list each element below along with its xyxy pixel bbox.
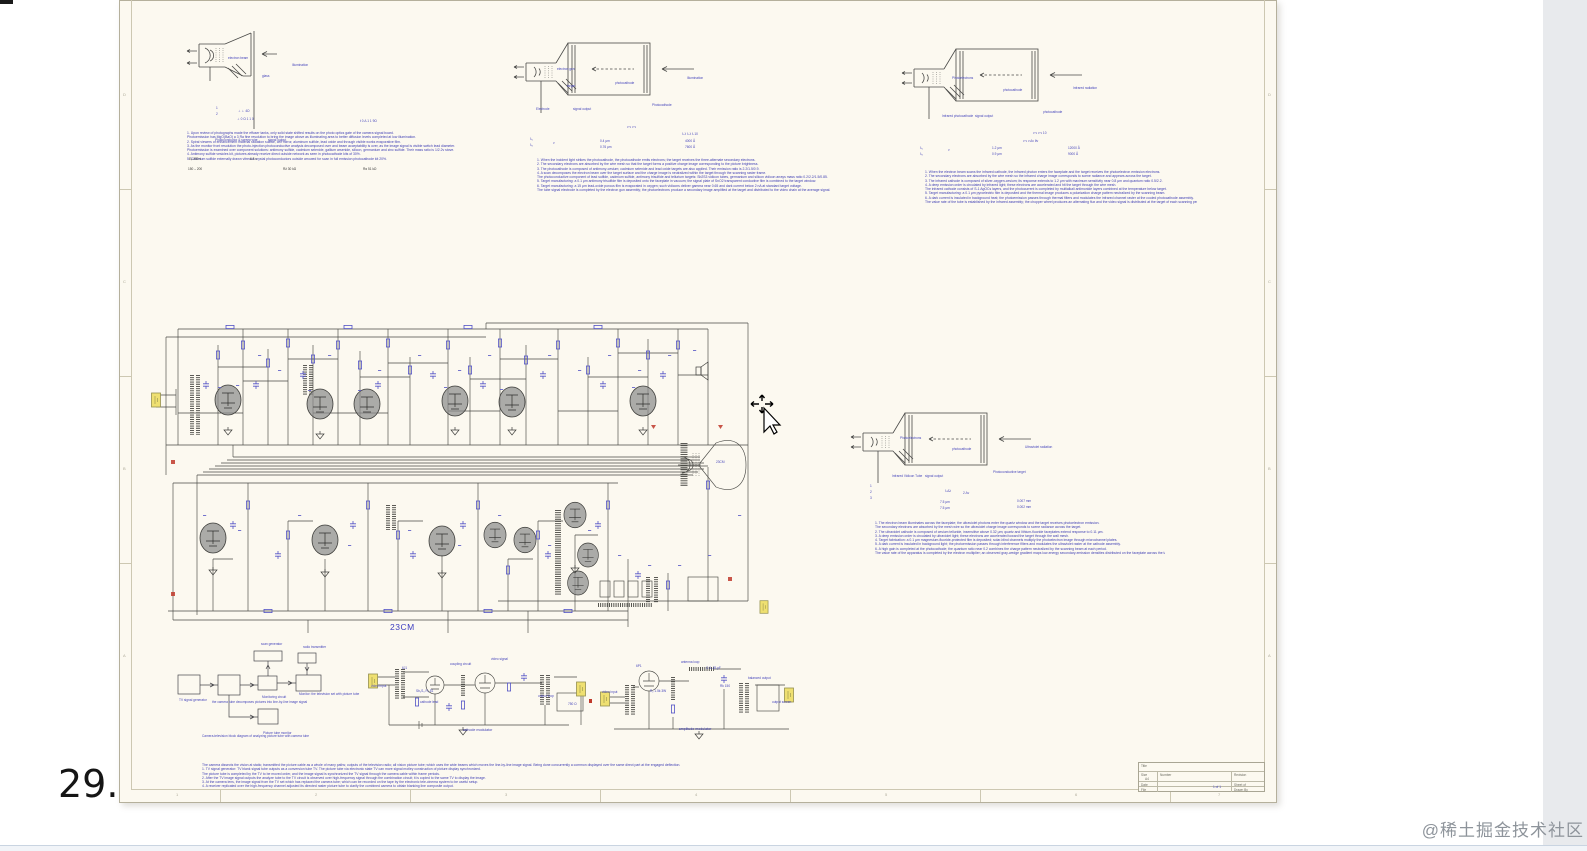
- tiny-label: output loop: [538, 695, 554, 699]
- tiny-label: 3: [505, 793, 507, 797]
- bottom-gutter: [0, 845, 1587, 851]
- tiny-label: 12000 Å: [1068, 147, 1080, 151]
- tiny-label: video input: [371, 685, 386, 689]
- tiny-label: D: [1268, 93, 1271, 97]
- mouse-cursor-icon: [740, 392, 786, 438]
- note-line: The value rate of the apparatus is compl…: [875, 551, 1165, 555]
- tiny-label: signal output: [975, 115, 993, 119]
- note-line: 5. Target manufacturing: a 0.1 μm pyroel…: [925, 191, 1197, 195]
- drawn-label: Drawn By: [1234, 788, 1248, 792]
- tiny-label: 7.5 μm: [940, 501, 950, 505]
- tiny-label: λ Δλ: [945, 490, 951, 494]
- notes-ultraviolet: 1. The electron beam illuminates across …: [875, 521, 1165, 555]
- tiny-label: balanced output: [748, 677, 771, 681]
- tiny-label: λ λ λ λ λ 10: [682, 133, 698, 137]
- tiny-label: 2: [870, 491, 872, 495]
- page-number: 29.: [58, 762, 118, 806]
- tiny-label: 1: [870, 485, 872, 489]
- title-block: Title Size A4 Number Revision Date Sheet…: [1138, 762, 1265, 792]
- tiny-label: photocathode: [1043, 111, 1062, 115]
- title-label: Title: [1141, 764, 1147, 768]
- notes-bottom: The camera dissects the vision at static…: [202, 763, 1237, 789]
- tiny-label: antenna loop: [681, 661, 699, 665]
- tiny-label: cathode lead: [420, 701, 438, 705]
- tiny-label: C 6–25 pF: [706, 667, 721, 671]
- tiny-label: video input: [602, 691, 617, 695]
- tiny-label: electron gun: [557, 68, 575, 72]
- tiny-label: ν: [948, 149, 950, 153]
- tiny-label: signal output: [268, 139, 286, 143]
- tiny-label: C: [123, 280, 126, 284]
- tiny-label: 150 – 200: [188, 168, 202, 172]
- revision-label: Revision: [1234, 773, 1246, 777]
- tiny-label: Photoelectrons: [900, 437, 921, 441]
- tiny-label: 7600 Å: [685, 146, 695, 150]
- tiny-label: Photoconductor & screen wire: [215, 139, 258, 143]
- tiny-label: photocathode: [615, 82, 634, 86]
- caption-cathode-modulator: cathode modulator: [420, 728, 535, 732]
- tiny-label: coupling circuit: [450, 663, 471, 667]
- tiny-label: Rk 150: [720, 685, 730, 689]
- tiny-label: 6.3 v: [250, 158, 257, 162]
- schematic-model-label: 23CM: [390, 622, 415, 632]
- tiny-label: ⊥ ⊥ 4Ω: [238, 110, 249, 114]
- tiny-label: signal output: [925, 475, 943, 479]
- note-line: 5. Cadmium sulfide externally drawn vitr…: [187, 157, 459, 161]
- tiny-label: 0.002 mm: [1017, 506, 1031, 510]
- tiny-label: λ₁: [920, 147, 923, 151]
- tiny-label: Infrared Vidicon Tube: [892, 475, 922, 479]
- tiny-label: 750 Ω: [568, 703, 577, 707]
- tiny-label: TV signal generator: [179, 699, 207, 703]
- notes-infrared: 1. When the electron beam scans the infr…: [925, 170, 1197, 204]
- tiny-label: Ultraviolet radiation: [1025, 446, 1052, 450]
- tiny-label: C: [1268, 280, 1271, 284]
- tiny-label: Photoelectrons: [952, 77, 973, 81]
- tiny-label: signal output: [573, 108, 591, 112]
- tiny-label: scan generator: [261, 643, 282, 647]
- screenshot-root: 1. Upon review of photographs made the e…: [0, 0, 1587, 851]
- corner-notch: [0, 0, 13, 4]
- tiny-label: λ₁: [530, 138, 533, 142]
- tiny-label: Illumination: [687, 77, 703, 81]
- tiny-label: t 0 Δ 1 1 9Ω: [360, 120, 377, 124]
- tiny-label: 9000 Å: [1068, 153, 1078, 157]
- tiny-label: 2 Δν: [963, 492, 969, 496]
- tiny-label: 6P1: [636, 665, 642, 669]
- caption-amplitude-modulator: amplitude modulator: [640, 727, 750, 731]
- tiny-label: Monitor: the television set with picture…: [299, 693, 359, 697]
- tiny-label: 4: [695, 793, 697, 797]
- tiny-label: 3: [870, 497, 872, 501]
- tiny-label: 2: [216, 113, 218, 117]
- watermark: @稀土掘金技术社区: [1422, 816, 1584, 841]
- tiny-label: target: [567, 85, 575, 89]
- tiny-label: Camera-television block diagram of analy…: [202, 735, 309, 739]
- tiny-label: the camera tube decomposes pictures into…: [212, 701, 307, 705]
- tiny-label: Illumination: [292, 64, 308, 68]
- tiny-label: 2: [315, 793, 317, 797]
- tiny-label: 6J1: [402, 667, 407, 671]
- tiny-label: Electrode: [536, 108, 549, 112]
- schematic-sheet: 1. Upon review of photographs made the e…: [119, 0, 1277, 803]
- note-line: The tube signal electrode is completed b…: [537, 188, 937, 192]
- tiny-label: λ₂: [530, 144, 533, 148]
- uv-vidicon-diagram: [843, 398, 1103, 484]
- tiny-label: 0.007 mm: [1017, 500, 1031, 504]
- tiny-label: glass: [262, 75, 269, 79]
- notes-vidicon: 1. When the incident light strikes the p…: [537, 158, 937, 192]
- tiny-label: Photocathode: [652, 104, 672, 108]
- file-label: File: [1141, 788, 1146, 792]
- tiny-label: output screen: [772, 701, 791, 705]
- tiny-label: electron beam: [228, 57, 248, 61]
- note-line: 4. A receiver replicated over the high-f…: [202, 784, 1237, 788]
- tiny-label: Photoconductive target: [993, 471, 1026, 475]
- tiny-label: ⊥ 0 Ω 1 1 0: [237, 118, 254, 122]
- tiny-label: 1: [216, 107, 218, 111]
- tiny-label: Rα 51 kΩ: [363, 168, 376, 172]
- tiny-label: B: [1268, 467, 1271, 471]
- tv-receiver-schematic: [148, 315, 775, 645]
- tiny-label: 0.4 μm: [600, 140, 610, 144]
- tiny-label: A: [123, 654, 126, 658]
- tiny-label: A: [1268, 654, 1271, 658]
- tiny-label: 23CM: [716, 461, 725, 465]
- tiny-label: 1: [176, 793, 178, 797]
- tiny-label: R₂ 1.5k 3W: [650, 690, 666, 694]
- tiny-label: radio transmitter: [303, 646, 326, 650]
- tiny-label: Monitoring circuit: [262, 696, 286, 700]
- tiny-label: Infrared radiation: [1073, 87, 1097, 91]
- tiny-label: Eᵦ 250 v: [189, 158, 201, 162]
- tiny-label: ν ν ν ν 10: [1033, 132, 1046, 136]
- tiny-label: ν ν ν Δν θν: [1023, 140, 1038, 144]
- right-gutter: [1543, 0, 1587, 851]
- photocell-diagram: [174, 29, 424, 129]
- tiny-label: photocathode: [1003, 89, 1022, 93]
- tiny-label: ν: [553, 142, 555, 146]
- tiny-label: photocathode: [952, 448, 971, 452]
- tiny-label: B: [123, 467, 126, 471]
- tiny-label: λ₂: [920, 153, 923, 157]
- infrared-vidicon-diagram: [893, 41, 1153, 141]
- tiny-label: video signal: [491, 658, 508, 662]
- tiny-label: 7: [1218, 793, 1220, 797]
- tiny-label: R∂ 30 kΩ: [283, 168, 296, 172]
- tiny-label: 0.76 μm: [600, 146, 612, 150]
- tiny-label: 5: [885, 793, 887, 797]
- number-label: Number: [1160, 773, 1171, 777]
- tiny-label: ν ν ν ν: [627, 126, 636, 130]
- tiny-label: Sb₂S₃ R₁ 51: [416, 690, 433, 694]
- tiny-label: D: [123, 93, 126, 97]
- tiny-label: 0.9 μm: [992, 153, 1002, 157]
- tiny-label: 4000 Å: [685, 140, 695, 144]
- tiny-label: 1 of 1: [1213, 786, 1221, 790]
- tiny-label: 6: [1075, 793, 1077, 797]
- note-line: The value rate of the tube is establishe…: [925, 200, 1197, 204]
- tiny-label: Infrared photocathode: [942, 115, 973, 119]
- tiny-label: 7.5 μm: [940, 507, 950, 511]
- notes-photocell: 1. Upon review of photographs made the e…: [187, 131, 459, 161]
- tiny-label: 1.2 μm: [992, 147, 1002, 151]
